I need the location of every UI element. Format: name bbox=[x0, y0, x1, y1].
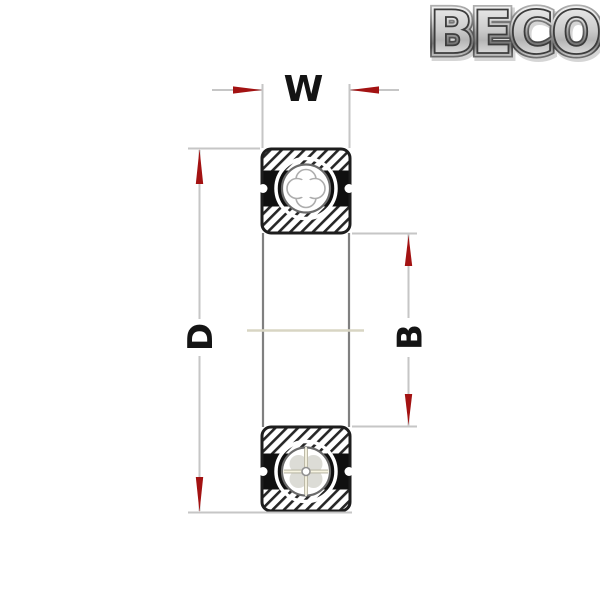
ring-section-top bbox=[259, 149, 354, 233]
d-dimension-label: D bbox=[181, 323, 221, 351]
drawing-canvas: BECO BECO BECO BECO bbox=[0, 0, 600, 600]
w-arrow-right-icon bbox=[233, 86, 262, 93]
beco-logo: BECO BECO BECO BECO bbox=[429, 0, 600, 71]
seal-edge-notch-bottom-right bbox=[345, 467, 354, 476]
b-arrow-down-icon bbox=[405, 394, 412, 425]
seal-edge-notch-top-left bbox=[259, 184, 268, 193]
seal-edge-notch-top-right bbox=[345, 184, 354, 193]
ring-section-bottom bbox=[259, 427, 354, 511]
w-dimension-label: W bbox=[284, 69, 324, 110]
beco-logo-inner-fill: BECO bbox=[429, 0, 599, 68]
dimension-w: W bbox=[212, 69, 399, 148]
bearing-technical-drawing: BECO BECO BECO BECO bbox=[0, 0, 600, 600]
bearing-cross-section bbox=[247, 149, 364, 511]
b-arrow-up-icon bbox=[405, 235, 412, 266]
d-arrow-up-icon bbox=[196, 149, 203, 184]
d-arrow-down-icon bbox=[196, 477, 203, 512]
seal-edge-notch-bottom-left bbox=[259, 467, 268, 476]
w-arrow-left-icon bbox=[350, 86, 379, 93]
b-dimension-label: B bbox=[391, 324, 431, 350]
